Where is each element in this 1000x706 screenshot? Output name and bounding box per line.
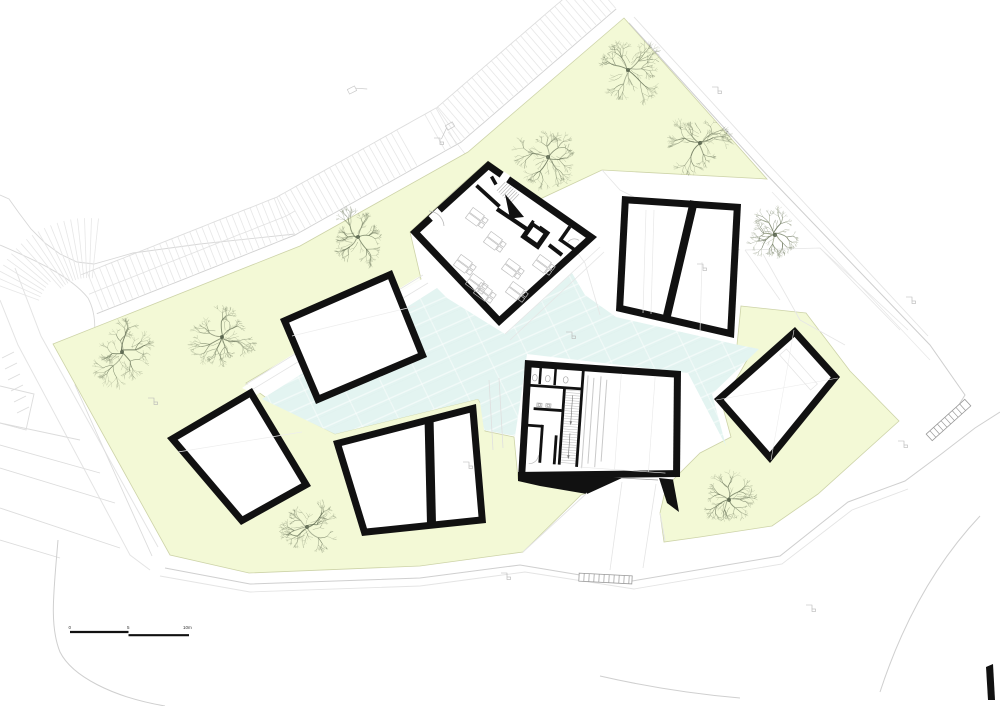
svg-text:10m: 10m xyxy=(183,625,192,630)
